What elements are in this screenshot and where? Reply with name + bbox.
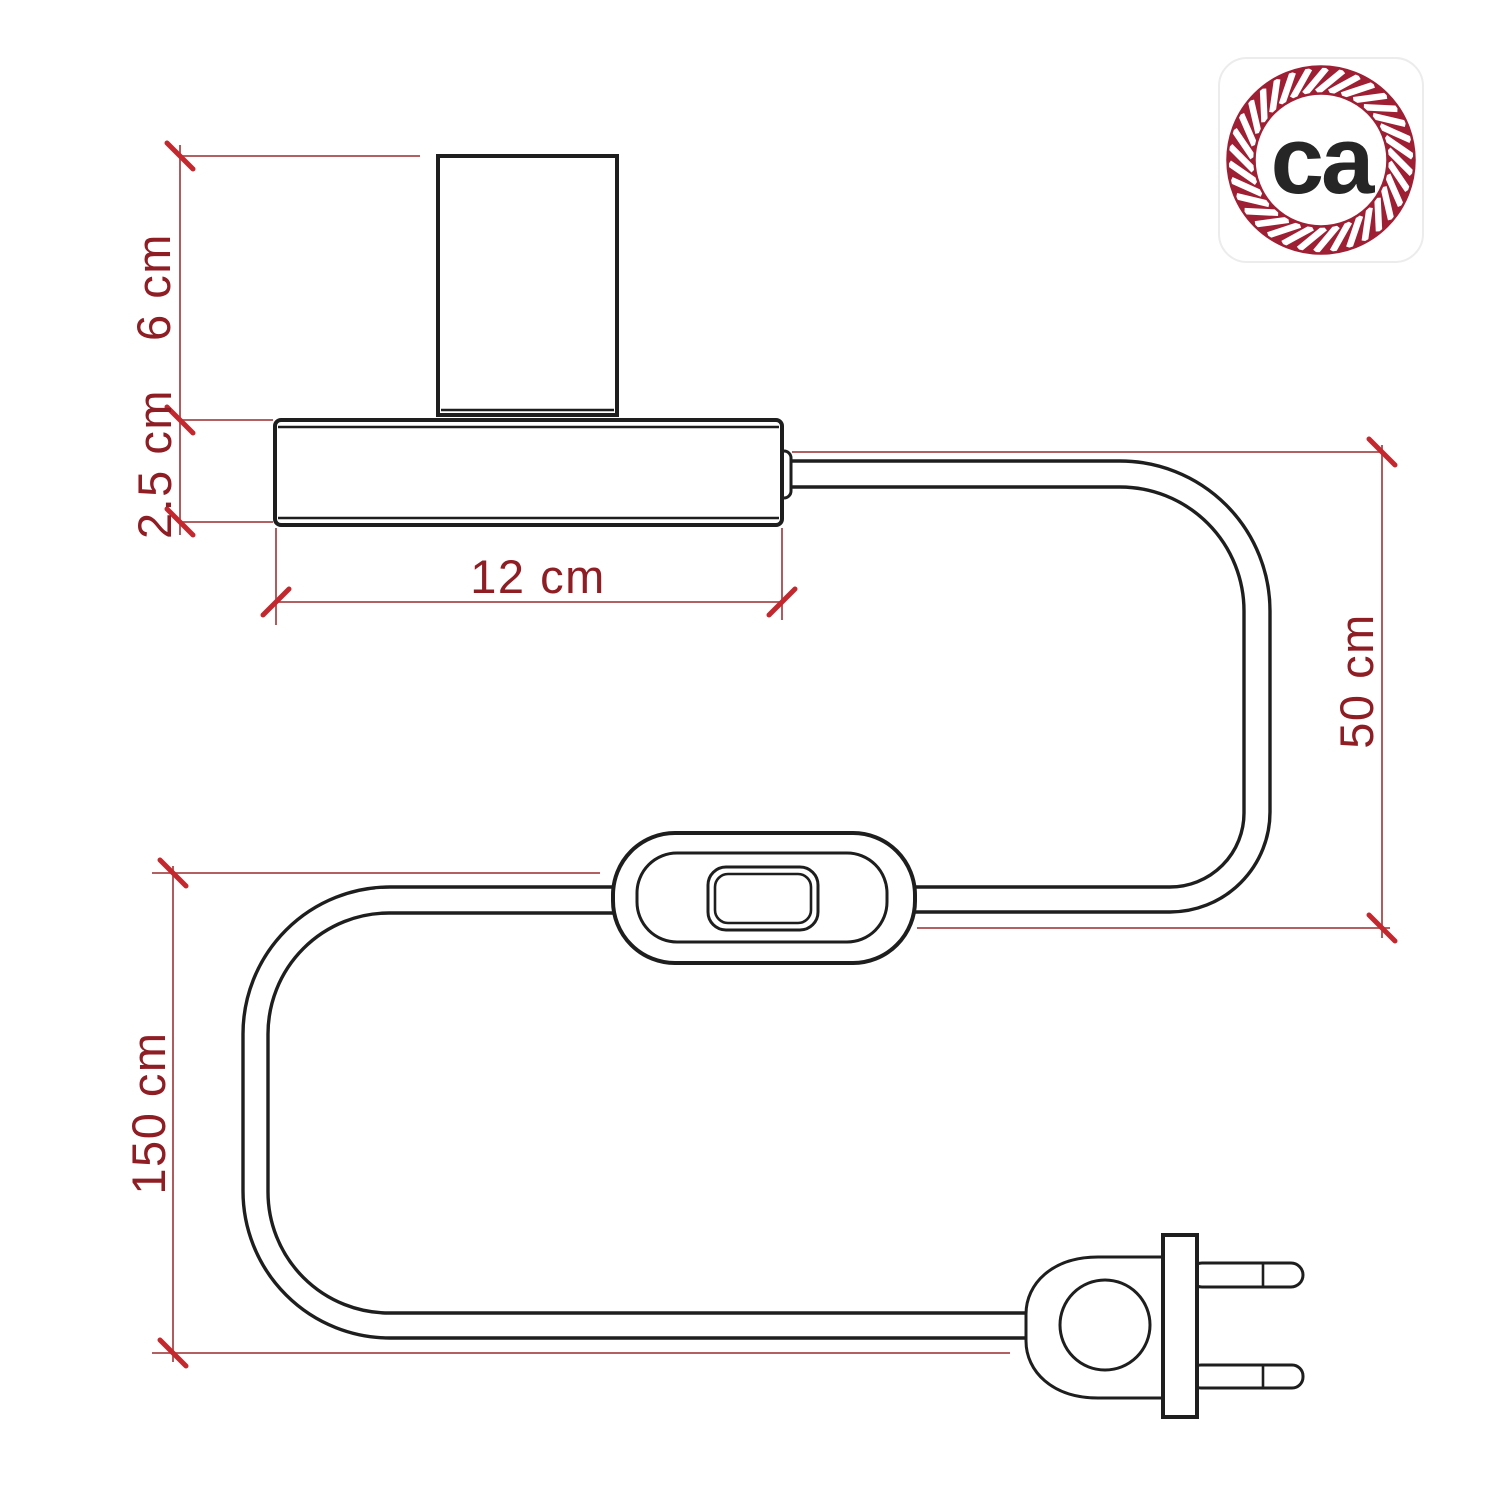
dimension-base-width: 12 cm [263, 528, 795, 625]
dimension-annotations: 6 cm 2.5 cm 12 cm 50 cm [122, 143, 1395, 1366]
rope-stripe [1255, 220, 1288, 225]
plug-pin-top [1190, 1263, 1303, 1287]
plug-face-plate [1163, 1235, 1197, 1417]
cable-lower-inner-line [268, 913, 1040, 1313]
rope-stripe [1353, 96, 1386, 101]
dim-label-base-height: 2.5 cm [128, 389, 181, 539]
lamp-base [275, 420, 782, 525]
inline-switch [613, 833, 915, 963]
plug-pin-bottom [1190, 1365, 1303, 1388]
power-plug [1026, 1235, 1303, 1417]
rope-stripe [1378, 198, 1380, 232]
dimension-diagram: 6 cm 2.5 cm 12 cm 50 cm [0, 0, 1500, 1500]
brand-logo: ca [1219, 58, 1423, 262]
dim-label-base-width: 12 cm [470, 550, 606, 603]
dim-label-socket-height: 6 cm [127, 233, 180, 341]
switch-button-outer [708, 867, 818, 930]
dim-label-total-cable: 150 cm [122, 1031, 175, 1194]
cable-upper-inner-line [791, 487, 1244, 887]
table-lamp-drawing [243, 156, 1303, 1417]
rope-stripe [1263, 89, 1265, 123]
dim-label-base-to-switch: 50 cm [1330, 613, 1383, 749]
lamp-socket [438, 156, 617, 415]
lamp-base-assembly [275, 156, 791, 525]
logo-text: ca [1271, 107, 1375, 214]
plug-body-circle-detail [1060, 1280, 1150, 1370]
diagram-svg: 6 cm 2.5 cm 12 cm 50 cm [0, 0, 1500, 1500]
